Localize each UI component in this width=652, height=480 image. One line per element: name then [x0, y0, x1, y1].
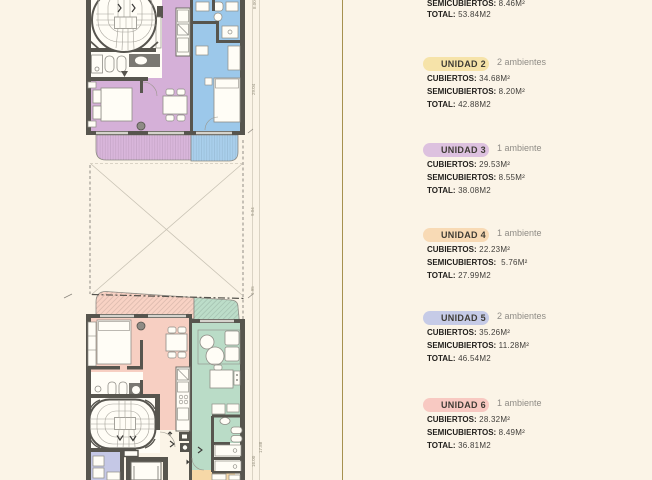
svg-text:8.00: 8.00 — [252, 0, 257, 9]
svg-text:17.88: 17.88 — [258, 441, 263, 453]
svg-text:29.04: 29.04 — [251, 83, 256, 95]
svg-text:9.04: 9.04 — [250, 207, 255, 216]
svg-text:16.00: 16.00 — [251, 455, 256, 467]
svg-text:1.95: 1.95 — [250, 286, 255, 295]
